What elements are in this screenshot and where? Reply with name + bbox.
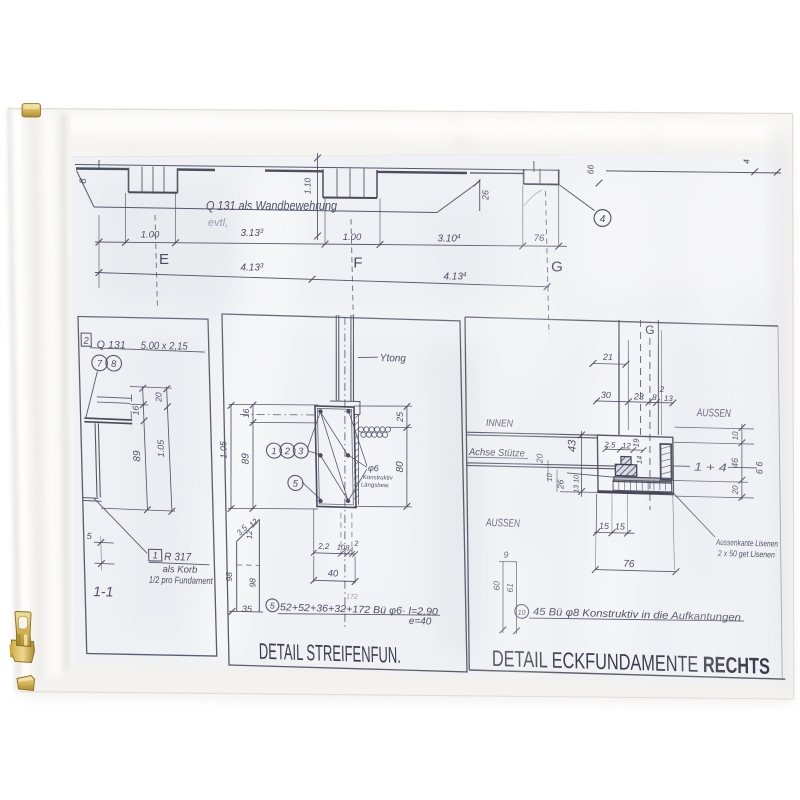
svg-text:8: 8 [111,359,117,370]
svg-text:5: 5 [270,601,275,611]
svg-text:5: 5 [293,478,299,489]
svg-text:43: 43 [566,439,578,452]
svg-text:13: 13 [664,394,674,403]
svg-text:1.05: 1.05 [218,440,228,459]
svg-text:14: 14 [635,456,644,465]
svg-text:1/2 pro Fundament: 1/2 pro Fundament [149,575,214,587]
svg-text:1-1: 1-1 [93,583,114,599]
svg-text:Ytong: Ytong [380,352,406,365]
svg-text:21: 21 [602,352,613,362]
svg-text:Q 131 als Wandbewehrung: Q 131 als Wandbewehrung [206,199,337,213]
svg-text:R 317: R 317 [164,551,192,564]
svg-text:16: 16 [130,406,140,416]
svg-text:4: 4 [600,214,606,225]
svg-text:15: 15 [615,521,626,531]
svg-text:2: 2 [82,336,89,347]
svg-text:3: 3 [298,446,304,457]
svg-text:19: 19 [632,438,641,448]
svg-text:2: 2 [659,385,665,394]
svg-text:1.05: 1.05 [156,439,166,458]
svg-text:e=40: e=40 [409,616,432,628]
svg-text:30: 30 [601,390,611,400]
svg-text:89: 89 [132,450,143,462]
svg-text:40: 40 [328,568,339,579]
svg-text:4: 4 [742,159,752,164]
svg-text:7: 7 [97,359,103,370]
svg-text:172: 172 [346,594,358,601]
svg-text:6 6: 6 6 [754,461,764,474]
svg-text:F: F [353,255,362,272]
svg-text:1: 1 [271,446,277,457]
svg-text:als Korb: als Korb [162,564,197,576]
svg-text:66: 66 [586,165,596,175]
svg-text:2.5: 2.5 [603,440,616,449]
svg-text:20: 20 [153,392,163,403]
svg-text:76: 76 [623,559,635,570]
svg-text:20: 20 [731,485,740,496]
svg-text:16: 16 [241,408,251,418]
svg-text:2,2: 2,2 [317,542,330,551]
svg-text:Q 131: Q 131 [97,339,126,352]
svg-text:35: 35 [242,604,253,614]
svg-text:23: 23 [633,391,644,401]
svg-text:2: 2 [284,446,291,457]
svg-text:98: 98 [224,572,234,582]
svg-text:80: 80 [395,461,406,473]
svg-text:Längsbew.: Längsbew. [361,482,390,489]
svg-text:12: 12 [622,441,632,450]
svg-text:8: 8 [652,393,657,402]
svg-text:8: 8 [78,178,89,184]
svg-text:89: 89 [240,453,251,465]
svg-text:26: 26 [481,190,491,201]
svg-text:1: 1 [152,550,158,561]
svg-text:25: 25 [395,411,405,423]
svg-text:Konstruktiv: Konstruktiv [363,475,394,482]
svg-text:4: 4 [349,547,353,554]
svg-text:10: 10 [573,475,580,483]
svg-text:E: E [159,251,169,268]
svg-text:1.10: 1.10 [303,177,313,194]
svg-text:15: 15 [599,521,610,531]
svg-text:φ6: φ6 [368,463,379,473]
svg-text:12: 12 [245,530,254,540]
svg-text:98: 98 [247,578,257,588]
svg-text:DETAIL STREIFENFUN.: DETAIL STREIFENFUN. [259,639,401,668]
svg-text:evtl,: evtl, [208,217,228,229]
svg-text:1.00: 1.00 [141,230,160,241]
svg-text:1.00: 1.00 [343,232,362,243]
